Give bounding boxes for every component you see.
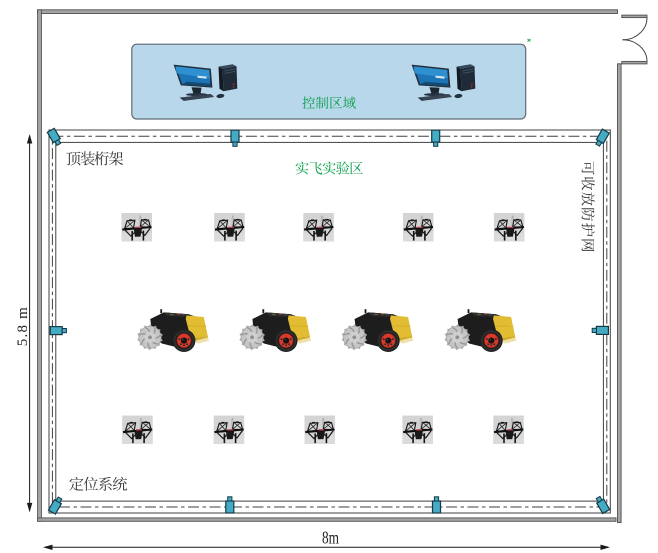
svg-text:8m: 8m xyxy=(322,528,339,548)
svg-text:5.8 m: 5.8 m xyxy=(15,306,31,346)
